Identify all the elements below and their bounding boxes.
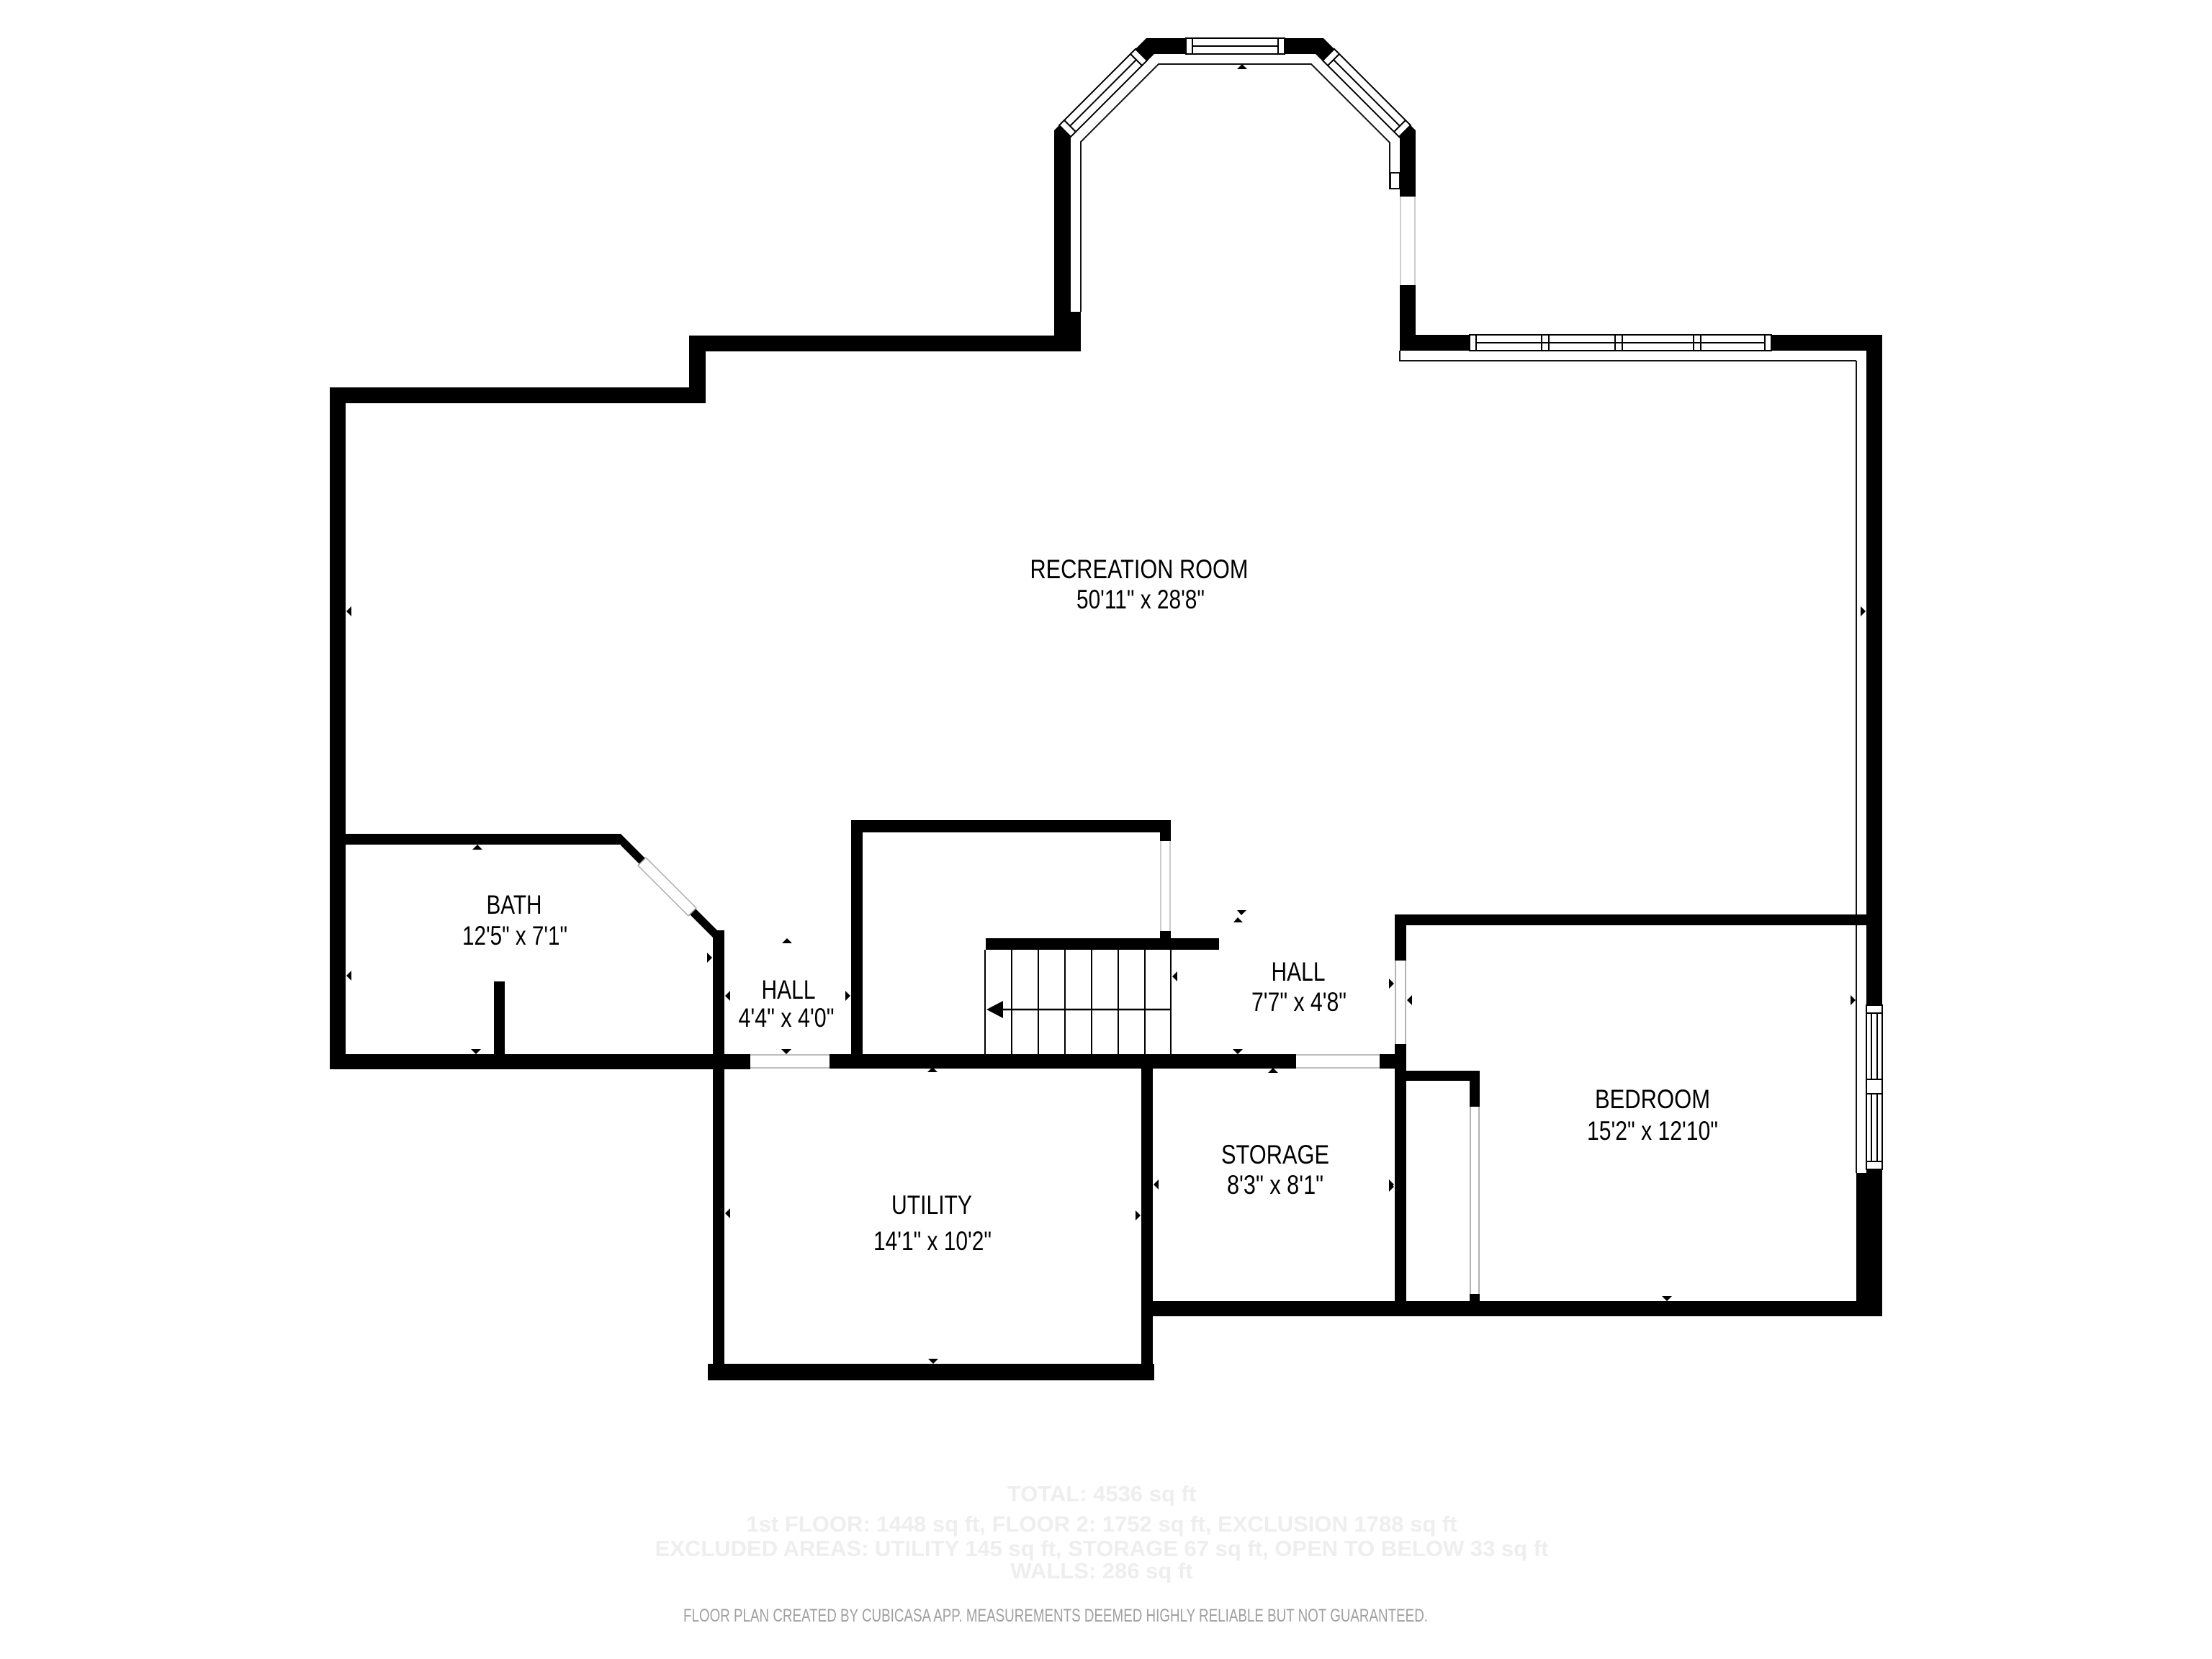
svg-text:HALL: HALL: [762, 975, 816, 1004]
svg-text:EXCLUDED AREAS: UTILITY 145 sq: EXCLUDED AREAS: UTILITY 145 sq ft, STORA…: [655, 1536, 1549, 1561]
svg-text:TOTAL: 4536 sq ft: TOTAL: 4536 sq ft: [1007, 1481, 1196, 1506]
svg-text:15'2" x 12'10": 15'2" x 12'10": [1587, 1116, 1718, 1146]
svg-text:14'1" x 10'2": 14'1" x 10'2": [873, 1226, 992, 1256]
svg-text:50'11" x 28'8": 50'11" x 28'8": [1076, 585, 1205, 614]
svg-text:4'4" x 4'0": 4'4" x 4'0": [739, 1003, 835, 1033]
svg-text:12'5" x 7'1": 12'5" x 7'1": [462, 921, 567, 950]
svg-text:FLOOR PLAN CREATED BY CUBICASA: FLOOR PLAN CREATED BY CUBICASA APP. MEAS…: [683, 1606, 1428, 1626]
svg-text:8'3" x 8'1": 8'3" x 8'1": [1227, 1170, 1323, 1200]
svg-text:BEDROOM: BEDROOM: [1595, 1084, 1710, 1114]
svg-text:1st FLOOR: 1448 sq ft, FLOOR 2: 1st FLOOR: 1448 sq ft, FLOOR 2: 1752 sq …: [746, 1511, 1457, 1537]
svg-text:STORAGE: STORAGE: [1221, 1140, 1329, 1169]
svg-text:BATH: BATH: [487, 890, 542, 920]
svg-text:UTILITY: UTILITY: [891, 1190, 972, 1220]
svg-text:HALL: HALL: [1272, 957, 1326, 986]
svg-text:7'7" x 4'8": 7'7" x 4'8": [1251, 987, 1346, 1017]
svg-text:RECREATION ROOM: RECREATION ROOM: [1030, 554, 1249, 584]
svg-text:WALLS: 286 sq ft: WALLS: 286 sq ft: [1010, 1558, 1192, 1583]
